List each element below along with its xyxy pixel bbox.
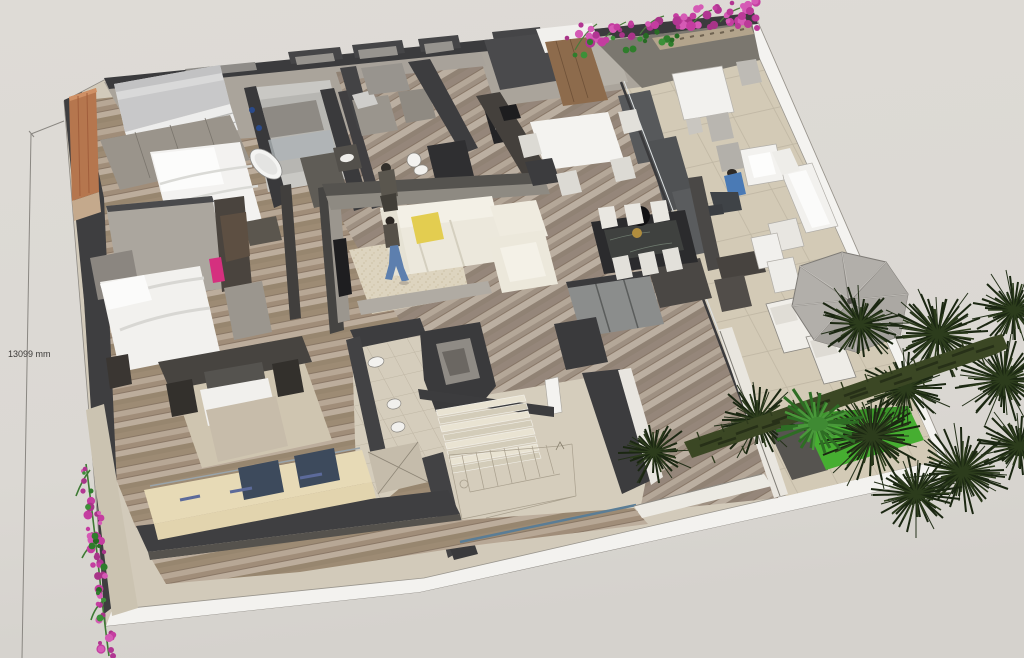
svg-text:13099 mm: 13099 mm [8,349,51,359]
